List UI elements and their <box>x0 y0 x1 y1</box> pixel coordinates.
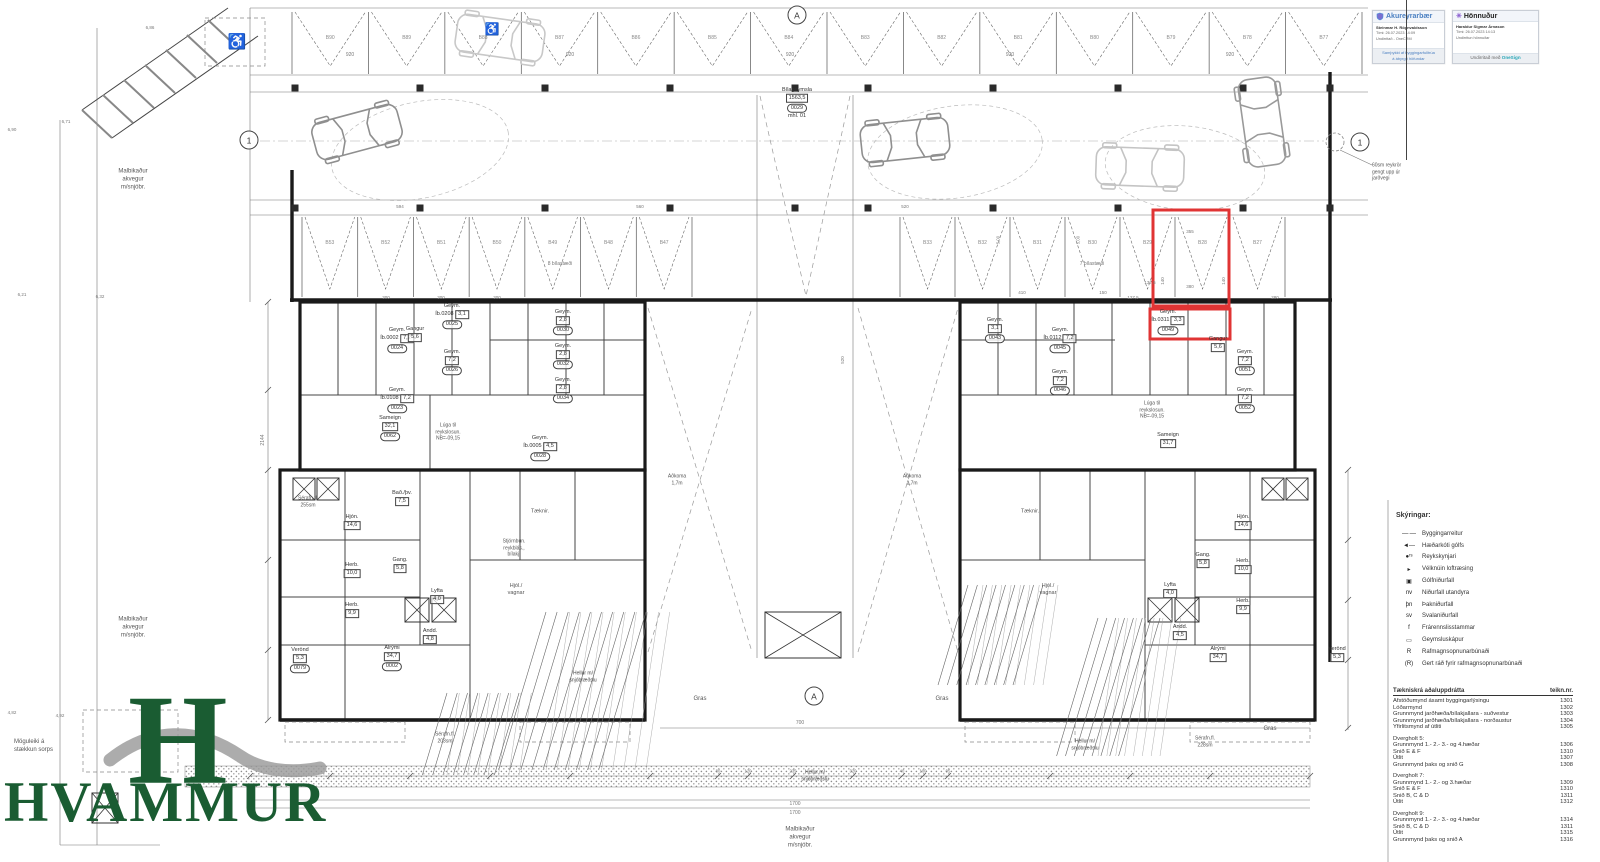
plan-label: 700 <box>796 720 804 727</box>
drawing-list-row: Grunnmynd þaks og snið A1316 <box>1393 837 1573 844</box>
room-label: Gang.5,8 <box>1196 552 1211 568</box>
parking-stall-label: B31 <box>1033 240 1042 247</box>
room-label: Alrými34,70002 <box>382 645 402 671</box>
plan-label: 6,71 <box>62 119 71 125</box>
plan-label: 6,90 <box>8 127 17 133</box>
plan-label: 280 <box>1271 295 1279 301</box>
grid-marker-a: A <box>788 6 807 25</box>
plan-label: Hellur m/ snjóbræðslu <box>801 770 828 783</box>
plan-label: Hjól./ vagnar <box>1040 583 1057 597</box>
drawing-name: Yfirlitsmynd af útliti <box>1393 724 1441 731</box>
parking-stall-label: B80 <box>1090 35 1099 42</box>
plan-label: Sérafn.fl. 255sm <box>298 496 318 509</box>
drawing-list-title: Tækniskrá aðaluppdrátta <box>1393 688 1464 694</box>
shield-icon <box>1376 12 1384 21</box>
plan-label: 140 <box>1160 277 1166 285</box>
parking-stall-label: B49 <box>548 240 557 247</box>
parking-stall-label: B84 <box>784 35 793 42</box>
room-label: Sameign31,7 <box>1157 432 1179 448</box>
parking-stall-label: B89 <box>402 35 411 42</box>
parking-stall-label: B78 <box>1243 35 1252 42</box>
parking-stall-label: B30 <box>1088 240 1097 247</box>
plan-label: Gras <box>693 696 706 704</box>
plan-label: 520 <box>901 204 909 210</box>
room-label: Gang.5,8 <box>393 557 408 573</box>
parking-stall-label: B51 <box>437 240 446 247</box>
parking-stall-label: B28 <box>1198 240 1207 247</box>
legend-item: nvNiðurfall utandyra <box>1396 587 1572 599</box>
plan-label: 100 <box>920 768 927 773</box>
onesign-brand: OneSign <box>1502 55 1521 60</box>
drawing-list-col: teikn.nr. <box>1550 688 1573 694</box>
approval-stamp-title: Akureyrarbær <box>1386 13 1432 20</box>
drawing-name: Grunnmynd þaks og snið A <box>1393 837 1463 844</box>
room-label: Andd.4,5 <box>1173 624 1187 640</box>
room-label: Geym.2,80030 <box>553 309 573 335</box>
room-label: Sameign32,10062 <box>379 415 401 441</box>
room-label: Geym.Íb.0005 4,50028 <box>523 435 557 461</box>
room-label: Geym.3,10043 <box>985 317 1005 343</box>
plan-label: Aðkoma 1,7m <box>903 474 921 487</box>
legend-symbol: nv <box>1396 590 1422 596</box>
plan-label: Tæknir. <box>531 508 549 515</box>
plan-label: Lúga til reykslosun. NB=-09,15 <box>1139 400 1164 420</box>
room-label: Herb.9,9 <box>345 602 359 618</box>
plan-label: 8 bílastæði <box>548 261 572 268</box>
plan-label: 140 <box>1221 277 1227 285</box>
plan-label: ♿ <box>485 22 500 38</box>
plan-label: 355 <box>1186 229 1194 235</box>
room-label: Geym.7,20052 <box>1235 387 1255 413</box>
room-label: Alrými34,7 <box>1210 646 1227 662</box>
plan-label: 120 <box>745 768 752 773</box>
parking-stall-label: B90 <box>326 35 335 42</box>
room-label: Verönd5,3 <box>1328 646 1345 662</box>
legend-item: —·—Byggingarreitur <box>1396 528 1572 540</box>
plan-label: 95 <box>946 768 951 773</box>
legend-symbol: —·— <box>1396 531 1422 537</box>
designer-sub: Undirritun hönnuðar <box>1456 36 1535 42</box>
parking-stall-label: B83 <box>861 35 870 42</box>
room-label: Gangur5,6 <box>406 326 424 342</box>
room-label: Verönd5,30079 <box>290 647 310 673</box>
room-label: Geym.7,20046 <box>1050 369 1070 395</box>
drawing-name: Útlit <box>1393 799 1403 806</box>
parking-stall-label: B82 <box>937 35 946 42</box>
plan-label: 80 <box>716 768 721 773</box>
plan-labels-layer: B90B89B88B87B86B85B84B83B82B81B80B79B78B… <box>0 0 1600 862</box>
legend-symbol: sv <box>1396 613 1422 619</box>
drawing-list-panel: Tækniskrá aðaluppdrátta teikn.nr. Afstöð… <box>1393 688 1573 843</box>
legend-label: Svalaniðurfall <box>1422 613 1458 619</box>
plan-label: 150 <box>1099 290 1107 296</box>
room-label: Bað./þv.7,5 <box>392 490 412 506</box>
legend-label: Rafmagnsopnunarbúnaði <box>1422 649 1489 655</box>
legend-symbol: ▸ <box>1396 566 1422 573</box>
designer-stamp-footer: Undirritað með OneSign <box>1453 53 1538 63</box>
grid-marker-1: 1 <box>1351 133 1370 152</box>
parking-stall-label: B86 <box>631 35 640 42</box>
grid-marker-a: A <box>805 687 824 706</box>
room-label: Geym.2,80032 <box>553 343 573 369</box>
room-label: Bílageymsla1563,50029mhl. 01 <box>782 87 812 120</box>
legend-label: Reykskynjari <box>1422 554 1456 560</box>
legend-item: ◄—Hæðarkóti gólfs <box>1396 540 1572 552</box>
legend-item: RRafmagnsopnunarbúnaði <box>1396 646 1572 658</box>
plan-label: Hjól./ vagnar <box>508 583 525 597</box>
plan-label: 4,82 <box>8 710 17 716</box>
legend-panel: Skýringar: —·—Byggingarreitur◄—Hæðarkóti… <box>1396 512 1572 670</box>
plan-label: 594 <box>396 204 404 210</box>
designer-stamp-title: Hönnuður <box>1464 13 1497 20</box>
legend-symbol: þn <box>1396 602 1422 608</box>
plan-label: Sérafn.fl. 228sm <box>1195 736 1215 749</box>
grid-marker-1: 1 <box>240 131 259 150</box>
plan-label: 380 <box>1186 284 1194 290</box>
drawing-list-rows: Afstöðumynd ásamt byggingarlýsingu1301Ló… <box>1393 698 1573 843</box>
drawing-list-row: Grunnmynd þaks og snið G1308 <box>1393 762 1573 769</box>
legend-item: fFrárennslisstammar <box>1396 622 1572 634</box>
room-label: Hjón.14,6 <box>1235 514 1252 530</box>
room-label: Herb.9,9 <box>1236 598 1250 614</box>
plan-label: 1700 <box>789 801 800 808</box>
room-label: Herb.10,0 <box>1235 558 1252 574</box>
plan-label: 300 <box>382 295 390 301</box>
plan-label: 6,86 <box>146 25 155 31</box>
designer-stamp-header: ✳ Hönnuður <box>1453 11 1538 22</box>
legend-symbol: ▣ <box>1396 578 1422 585</box>
parking-stall-label: B29 <box>1143 240 1152 247</box>
legend-item: ●ʳˢReykskynjari <box>1396 552 1572 564</box>
plan-label: Stjórnbún. reykblás., bílakj. <box>503 538 526 558</box>
legend-symbol: ●ʳˢ <box>1396 554 1422 560</box>
room-label: Hjón.14,6 <box>344 514 361 530</box>
approval-footer-line2: á ábyrgð höfundar <box>1375 56 1442 62</box>
plan-label: Malbikaður akvegur m/snjóbr. <box>118 616 147 639</box>
room-label: Lyfta4,0 <box>1163 582 1177 598</box>
room-label: Geym.2,80034 <box>553 377 573 403</box>
drawing-number: 1305 <box>1560 724 1573 731</box>
approval-stamp-body: Steinmar H. Rögnvaldsson Tími: 26.07.202… <box>1373 23 1444 48</box>
legend-label: Vélknúin loftræsing <box>1422 566 1473 572</box>
plan-label: Hellur m/ snjóbræðslu <box>1071 739 1098 752</box>
plan-label: 920 <box>1226 52 1234 59</box>
room-label: Geym.Íb.0108 7,20023 <box>380 387 414 413</box>
drawing-list-header: Tækniskrá aðaluppdrátta teikn.nr. <box>1393 688 1573 696</box>
parking-stall-label: B47 <box>660 240 669 247</box>
plan-label: Malbikaður akvegur m/snjóbr. <box>785 826 814 849</box>
room-label: Andd.4,8 <box>423 628 437 644</box>
parking-stall-label: B32 <box>978 240 987 247</box>
legend-label: Niðurfall utandyra <box>1422 590 1469 596</box>
plan-label: 235 <box>790 768 797 773</box>
designer-stamp-body: Haraldur Sigmar Árnason Tími: 26.07.2023… <box>1453 22 1538 53</box>
asterisk-icon: ✳ <box>1456 12 1462 20</box>
plan-label: Lúga til reykslosun. NB=-09,15 <box>435 422 460 442</box>
plan-label: 300 <box>437 295 445 301</box>
plan-label: Gras <box>935 696 948 704</box>
plan-label: 6,32 <box>96 294 105 300</box>
parking-stall-label: B33 <box>923 240 932 247</box>
plan-label: 410 <box>1018 290 1026 296</box>
plan-label: ♿ <box>228 32 247 52</box>
legend-title: Skýringar: <box>1396 512 1572 519</box>
plan-label: Malbikaður akvegur m/snjóbr. <box>118 168 147 191</box>
drawing-list-row: Útlit1312 <box>1393 799 1573 806</box>
plan-label: 920 <box>1006 52 1014 59</box>
plan-label: 5,00 <box>1075 236 1080 244</box>
legend-symbol: f <box>1396 625 1422 631</box>
parking-stall-label: B77 <box>1319 35 1328 42</box>
plan-label: 5,00 <box>995 236 1000 244</box>
legend-label: Frárennslisstammar <box>1422 625 1475 631</box>
legend-symbol: (R) <box>1396 661 1422 667</box>
plan-label: 127,5 <box>1127 295 1138 301</box>
room-label: Gangur5,6 <box>1209 336 1227 352</box>
drawing-number: 1316 <box>1560 837 1573 844</box>
plan-label: 920 <box>786 52 794 59</box>
parking-stall-label: B48 <box>604 240 613 247</box>
legend-label: Gert ráð fyrir rafmagnsopnunarbúnaði <box>1422 661 1522 667</box>
parking-stall-label: B85 <box>708 35 717 42</box>
plan-label: Gras <box>1263 726 1276 734</box>
legend-symbol: ◄— <box>1396 543 1422 549</box>
floor-plan-canvas: B90B89B88B87B86B85B84B83B82B81B80B79B78B… <box>0 0 1600 862</box>
approval-stamp: Akureyrarbær Steinmar H. Rögnvaldsson Tí… <box>1372 10 1445 64</box>
legend-symbol: R <box>1396 649 1422 655</box>
plan-label: 137,5 <box>1144 280 1155 286</box>
legend-label: Byggingarreitur <box>1422 531 1463 537</box>
parking-stall-label: B52 <box>381 240 390 247</box>
plan-label: 4,92 <box>56 713 65 719</box>
parking-stall-label: B87 <box>555 35 564 42</box>
legend-item: ▸Vélknúin loftræsing <box>1396 563 1572 575</box>
dimension-extension-line <box>1406 0 1407 160</box>
legend-symbol: ▭ <box>1396 637 1422 644</box>
plan-label: 920 <box>346 52 354 59</box>
drawing-list-row: Yfirlitsmynd af útliti1305 <box>1393 724 1573 731</box>
room-label: Geym.7,20026 <box>442 349 462 375</box>
designer-stamp: ✳ Hönnuður Haraldur Sigmar Árnason Tími:… <box>1452 10 1539 64</box>
plan-label: 300 <box>493 295 501 301</box>
legend-label: Geymsluskápur <box>1422 637 1464 643</box>
approval-stamp-footer: Samþykkt af byggingarfulltrúa á ábyrgð h… <box>1373 48 1444 63</box>
plan-label: 920 <box>566 52 574 59</box>
legend-label: Þakniðurfall <box>1422 602 1453 608</box>
plan-label: 7 bílastæði <box>1080 261 1104 268</box>
plan-label: 520 <box>840 356 846 364</box>
room-label: Geym.Íb.0208 3,10025 <box>435 303 469 329</box>
approval-sub: Undirritað - OneCRM <box>1376 37 1441 43</box>
plan-label: 6,21 <box>18 292 27 298</box>
plan-label: 320 <box>850 768 857 773</box>
onesign-prefix: Undirritað með <box>1470 55 1501 60</box>
legend-label: Gólfniðurfall <box>1422 578 1454 584</box>
drawing-name: Grunnmynd þaks og snið G <box>1393 762 1464 769</box>
plan-label: 60sm reykrör gengt upp úr jarðvegi <box>1372 162 1401 182</box>
approval-stamp-header: Akureyrarbær <box>1373 11 1444 23</box>
plan-label: 560 <box>636 204 644 210</box>
legend-label: Hæðarkóti gólfs <box>1422 543 1464 549</box>
plan-label: Aðkoma 1,7m <box>668 474 686 487</box>
room-label: Geym.Íb.0112 7,20045 <box>1043 327 1076 353</box>
plan-label: 40 <box>900 768 905 773</box>
legend-item: svSvalaniðurfall <box>1396 611 1572 623</box>
legend-item: ▭Geymsluskápur <box>1396 634 1572 646</box>
parking-stall-label: B79 <box>1166 35 1175 42</box>
legend-item: (R)Gert ráð fyrir rafmagnsopnunarbúnaði <box>1396 658 1572 670</box>
room-label: Herb.10,0 <box>344 562 361 578</box>
parking-stall-label: B50 <box>493 240 502 247</box>
legend-item: þnÞakniðurfall <box>1396 599 1572 611</box>
plan-label: Möguleiki á stækkun sorps <box>14 739 53 755</box>
parking-stall-label: B81 <box>1014 35 1023 42</box>
room-label: Geym.7,20051 <box>1235 349 1255 375</box>
room-label: Lyfta4,0 <box>430 588 444 604</box>
plan-label: Tæknir. <box>1021 508 1039 515</box>
plan-label: 2144 <box>260 434 267 445</box>
room-label: Geym.Íb.0311 3,30049 <box>1151 309 1184 335</box>
legend-item: ▣Gólfniðurfall <box>1396 575 1572 587</box>
parking-stall-label: B53 <box>325 240 334 247</box>
plan-label: Sérafn.fl. 203sm <box>435 732 455 745</box>
parking-stall-label: B27 <box>1253 240 1262 247</box>
plan-label: 1700 <box>789 810 800 817</box>
drawing-number: 1312 <box>1560 799 1573 806</box>
legend-items: —·—Byggingarreitur◄—Hæðarkóti gólfs●ʳˢRe… <box>1396 528 1572 670</box>
drawing-number: 1308 <box>1560 762 1573 769</box>
plan-label: Hellur m/ snjóbræðslu <box>569 671 596 684</box>
